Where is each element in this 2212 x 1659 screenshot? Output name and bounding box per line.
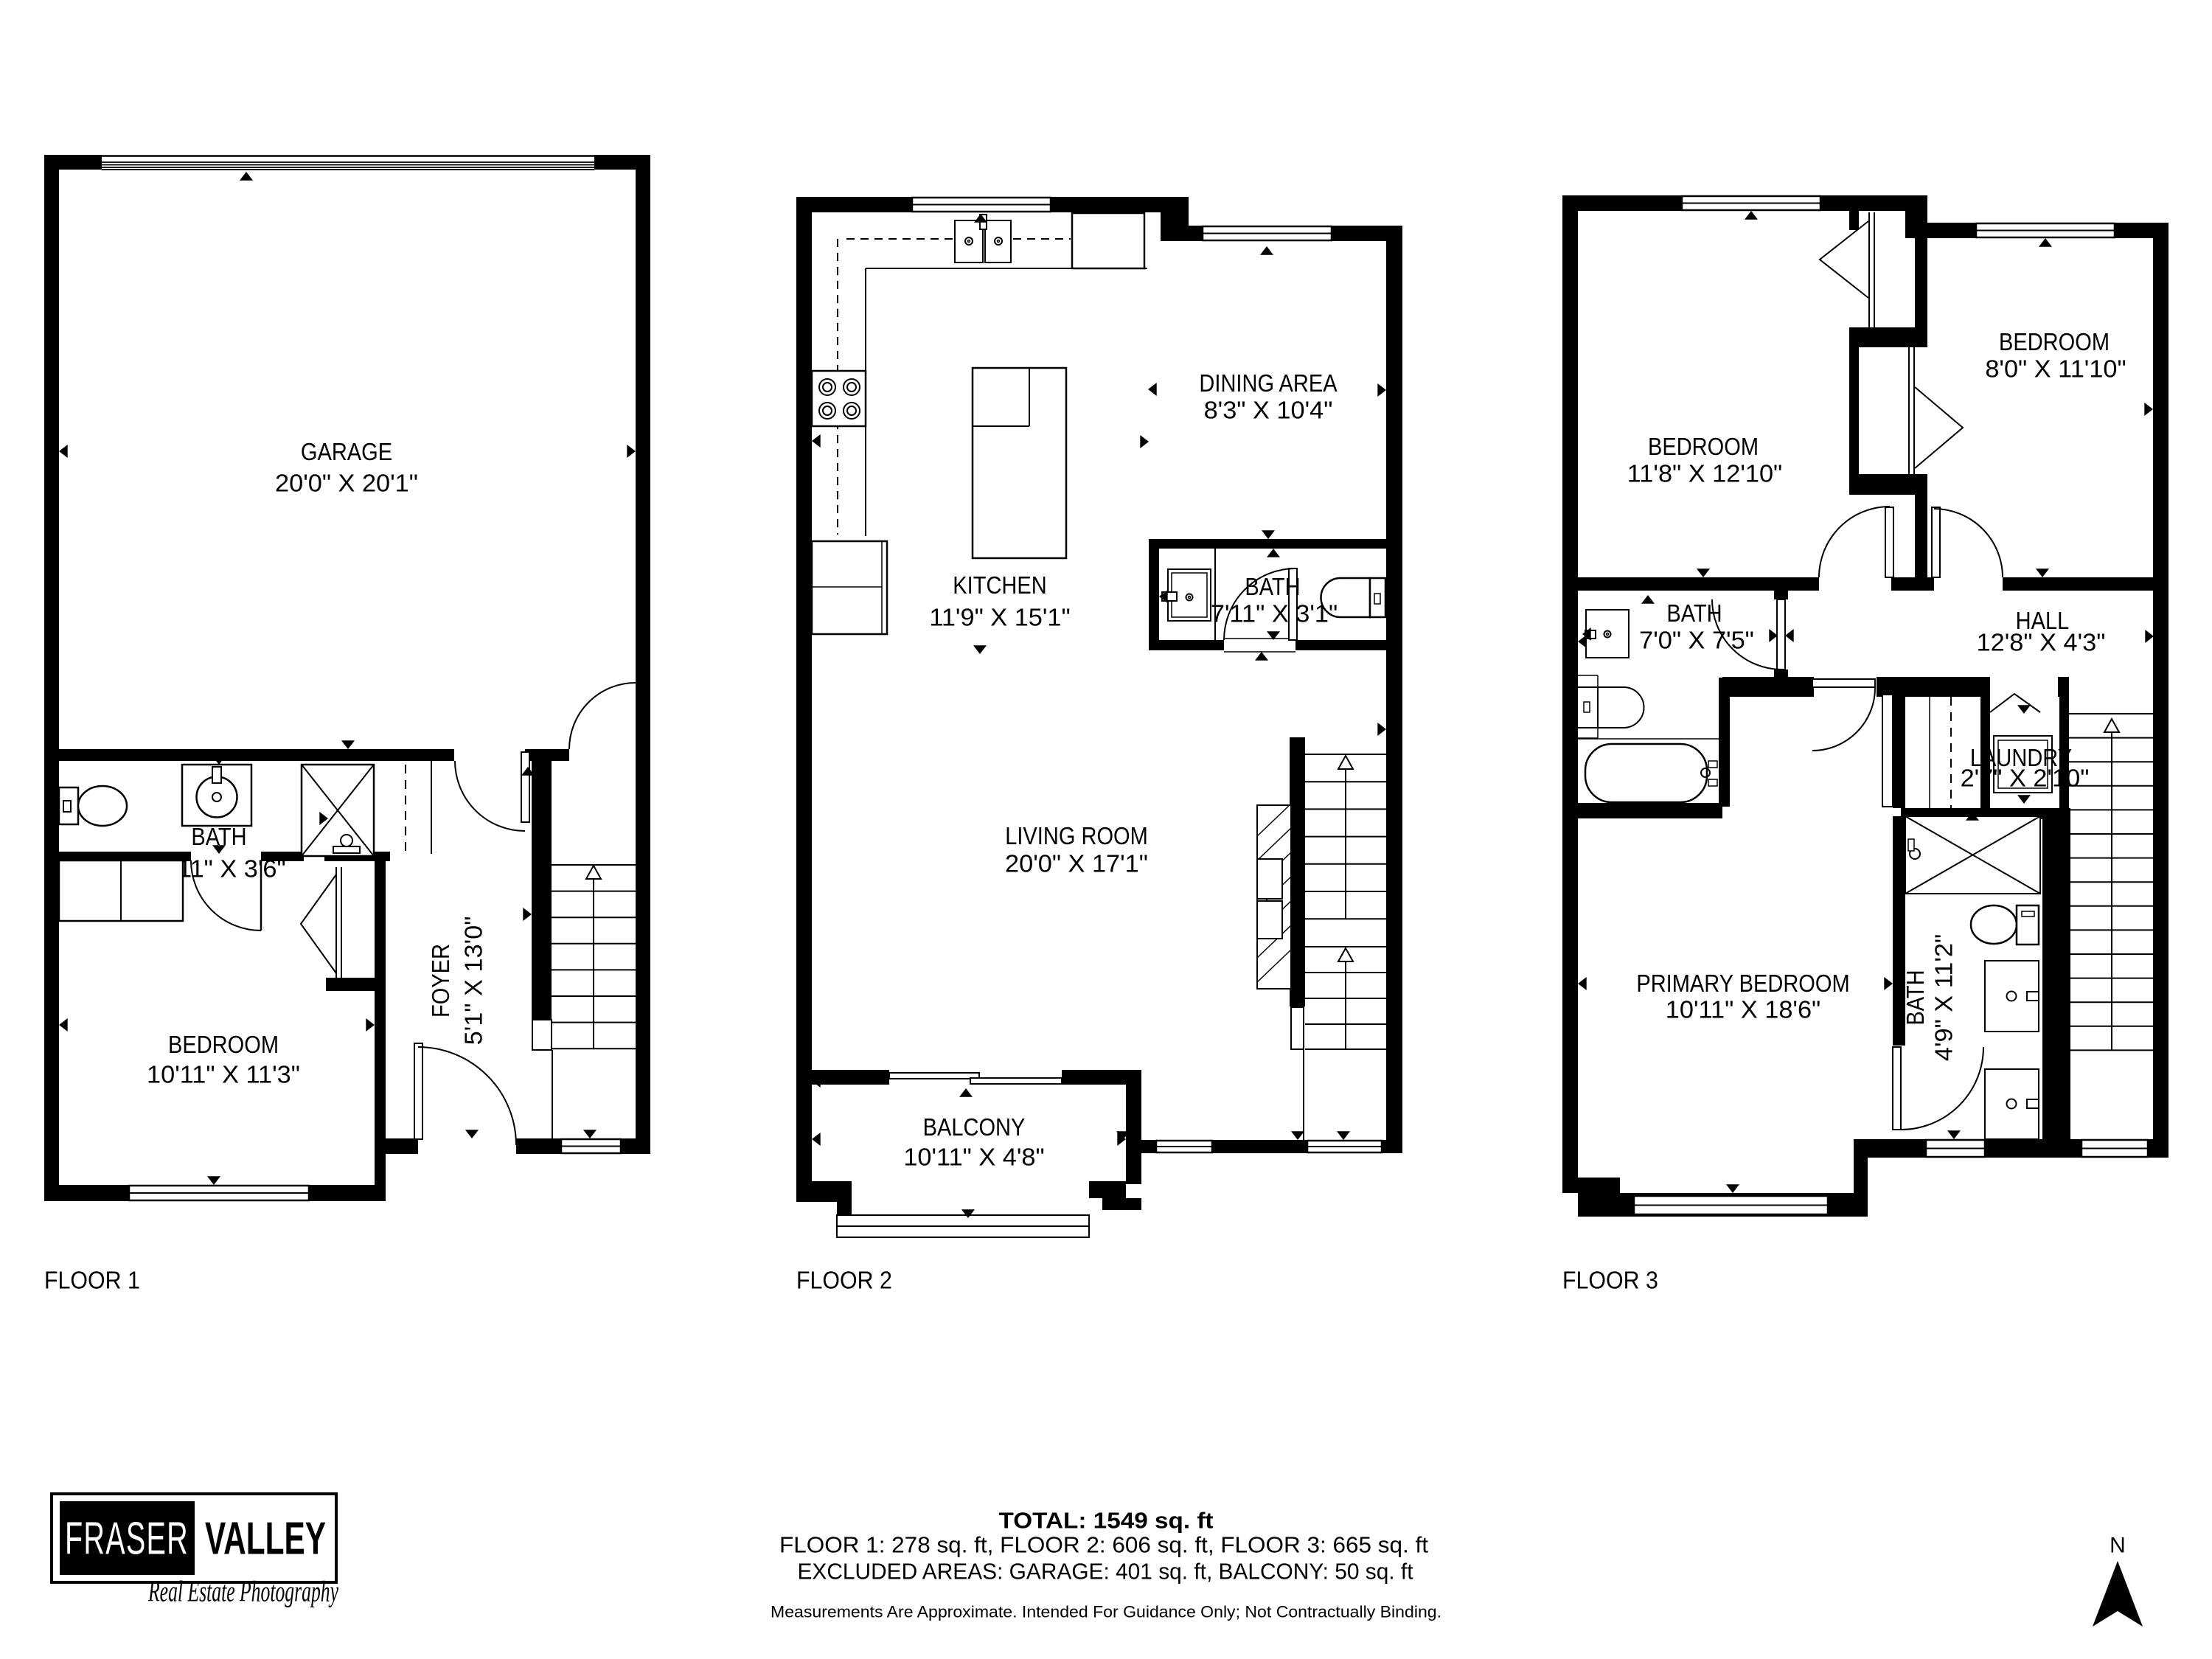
svg-text:20'0" X 17'1": 20'0" X 17'1"	[1005, 851, 1148, 877]
svg-text:LIVING ROOM: LIVING ROOM	[1005, 822, 1148, 849]
svg-text:BATH: BATH	[1666, 599, 1722, 627]
svg-text:10'11" X 18'6": 10'11" X 18'6"	[1666, 997, 1820, 1023]
svg-text:7'11" X 3'1": 7'11" X 3'1"	[1211, 601, 1338, 627]
svg-text:2'7" X 2'10": 2'7" X 2'10"	[1961, 765, 2090, 792]
svg-text:Real Estate Photography: Real Estate Photography	[147, 1575, 338, 1608]
svg-text:11'8" X 12'10": 11'8" X 12'10"	[1627, 461, 1782, 487]
svg-text:FLOOR 1: FLOOR 1	[44, 1266, 140, 1293]
svg-text:10'11" X 11'3": 10'11" X 11'3"	[147, 1062, 300, 1088]
svg-text:BEDROOM: BEDROOM	[1648, 433, 1759, 460]
svg-text:BATH: BATH	[1902, 970, 1929, 1025]
svg-text:20'0" X 20'1": 20'0" X 20'1"	[275, 470, 418, 497]
svg-text:FOYER: FOYER	[427, 944, 454, 1018]
svg-text:BATH: BATH	[1245, 573, 1300, 600]
svg-text:GARAGE: GARAGE	[301, 438, 392, 465]
svg-text:N: N	[2110, 1534, 2126, 1558]
svg-text:BALCONY: BALCONY	[923, 1113, 1026, 1141]
svg-text:11'9" X 15'1": 11'9" X 15'1"	[929, 605, 1070, 631]
svg-text:8'0" X 11'10": 8'0" X 11'10"	[1985, 356, 2126, 383]
svg-text:BEDROOM: BEDROOM	[168, 1031, 279, 1058]
svg-text:FLOOR 1: 278 sq. ft, FLOOR 2:: FLOOR 1: 278 sq. ft, FLOOR 2: 606 sq. ft…	[779, 1532, 1428, 1558]
svg-text:DINING AREA: DINING AREA	[1199, 369, 1337, 397]
svg-text:BEDROOM: BEDROOM	[1999, 328, 2110, 355]
svg-text:FRASER: FRASER	[65, 1514, 189, 1565]
svg-text:Measurements Are Approximate.: Measurements Are Approximate. Intended F…	[771, 1603, 1441, 1621]
svg-text:PRIMARY BEDROOM: PRIMARY BEDROOM	[1636, 970, 1849, 997]
svg-text:8'3" X 10'4": 8'3" X 10'4"	[1204, 397, 1333, 424]
svg-text:EXCLUDED AREAS: GARAGE: 401 sq: EXCLUDED AREAS: GARAGE: 401 sq. ft, BALC…	[798, 1559, 1413, 1585]
svg-text:10'11" X 4'8": 10'11" X 4'8"	[903, 1144, 1044, 1171]
svg-text:KITCHEN: KITCHEN	[953, 571, 1046, 599]
svg-text:4'9" X 11'2": 4'9" X 11'2"	[1931, 934, 1958, 1061]
svg-text:5'1" X 13'0": 5'1" X 13'0"	[461, 917, 487, 1046]
svg-text:FLOOR 2: FLOOR 2	[796, 1266, 892, 1293]
svg-text:7'0" X 7'5": 7'0" X 7'5"	[1639, 627, 1754, 654]
svg-text:FLOOR 3: FLOOR 3	[1562, 1266, 1658, 1293]
svg-text:VALLEY: VALLEY	[205, 1514, 326, 1565]
svg-text:12'8" X 4'3": 12'8" X 4'3"	[1977, 630, 2106, 656]
svg-text:TOTAL: 1549 sq. ft: TOTAL: 1549 sq. ft	[999, 1508, 1214, 1534]
